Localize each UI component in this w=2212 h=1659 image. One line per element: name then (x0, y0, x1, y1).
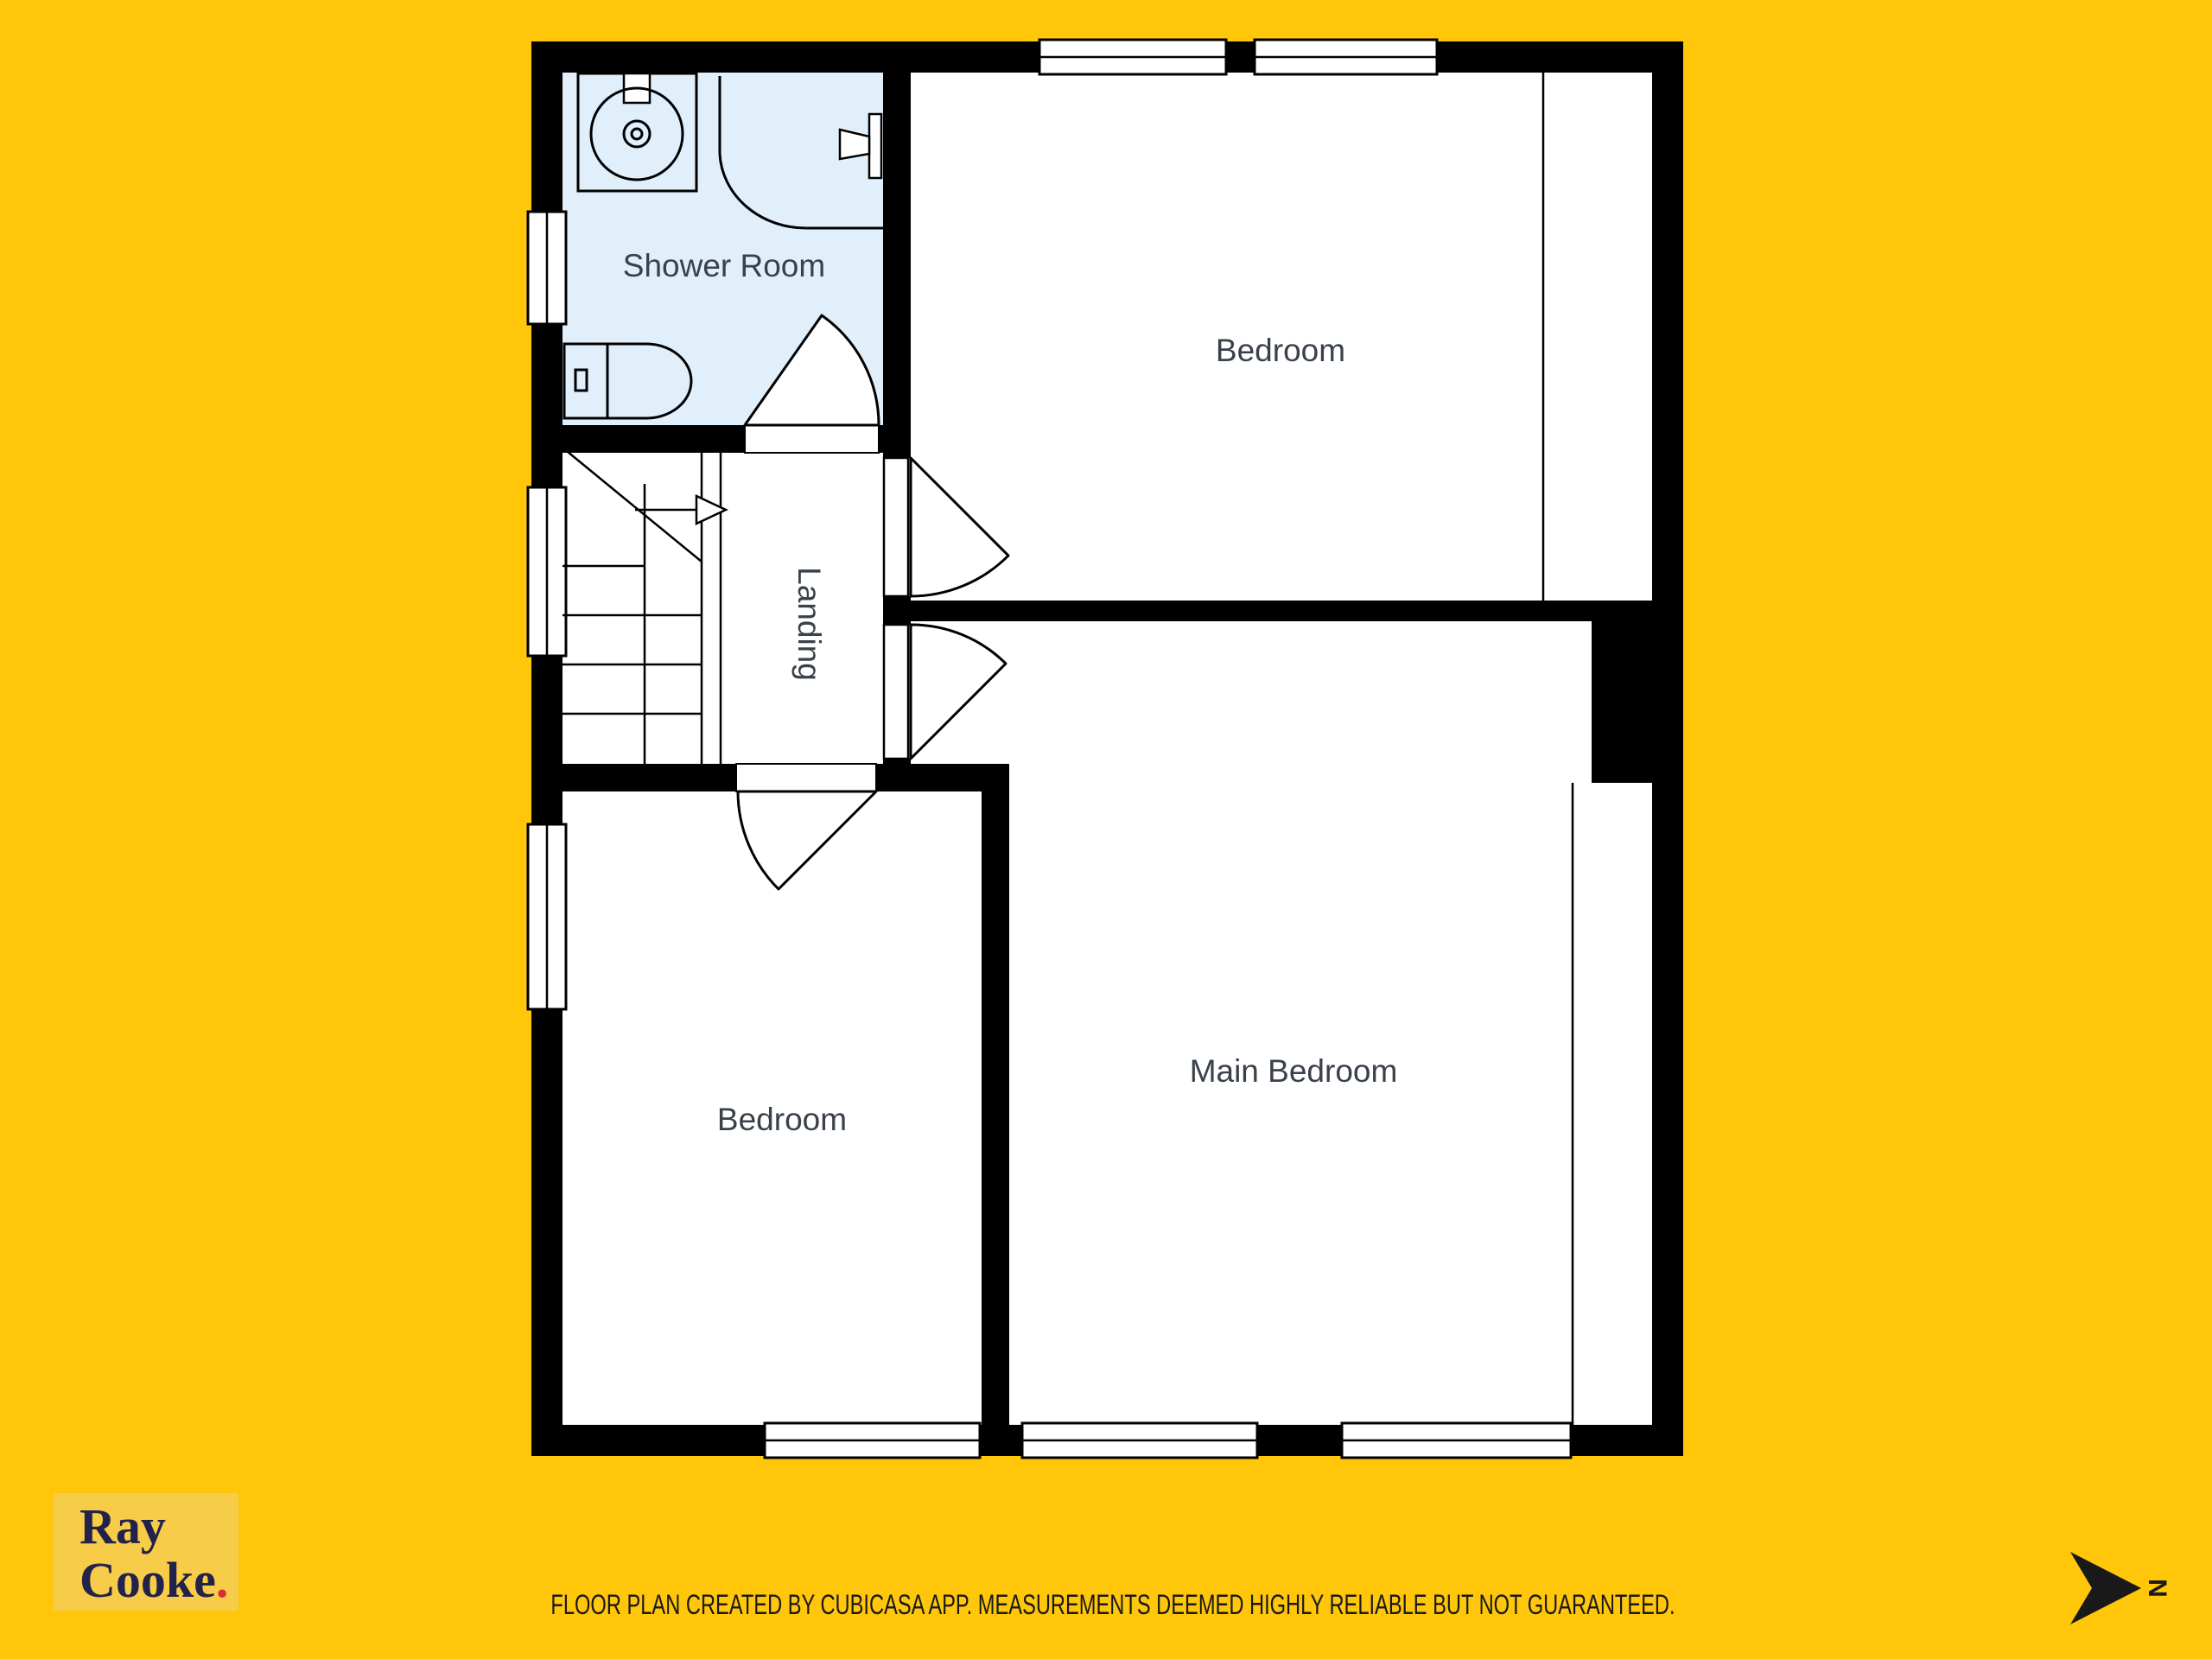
window (528, 487, 566, 656)
shower-room-door-opening (745, 425, 879, 453)
wall-landing-bottom-right (876, 764, 1009, 791)
wall-shower-bottom-left (563, 425, 745, 453)
wall-between-bottom-bedrooms (982, 791, 1009, 1425)
room-label-landing: Landing (791, 567, 827, 681)
bedroom-left-door-opening (736, 764, 876, 791)
room-label-shower-room: Shower Room (623, 248, 825, 283)
agency-logo-accent-dot: . (216, 1552, 229, 1608)
window (528, 212, 566, 324)
window (528, 824, 566, 1009)
north-label: N (2143, 1579, 2171, 1598)
window (1255, 40, 1437, 74)
wall-spine-upper (883, 41, 911, 458)
room-label-main-bedroom: Main Bedroom (1190, 1053, 1398, 1089)
agency-logo: Ray Cooke. (54, 1493, 238, 1611)
room-label-bedroom-left: Bedroom (717, 1102, 847, 1137)
wall-between-right-bedrooms (883, 601, 1652, 621)
bedroom-top-door-leaf (884, 458, 908, 596)
window (765, 1423, 980, 1458)
disclaimer-text: FLOOR PLAN CREATED BY CUBICASA APP. MEAS… (550, 1590, 1675, 1620)
north-arrow-icon (2070, 1552, 2141, 1624)
room-label-bedroom-top: Bedroom (1216, 333, 1345, 368)
window (1342, 1423, 1571, 1458)
agency-logo-name: Cooke (79, 1552, 216, 1608)
floor-plan-canvas: Shower Room Bedroom Landing Bedroom Main… (0, 0, 2212, 1659)
window (1022, 1423, 1257, 1458)
floor-plan-page: Shower Room Bedroom Landing Bedroom Main… (0, 0, 2212, 1659)
wall-shower-bottom-right (879, 425, 911, 453)
window (1039, 40, 1226, 74)
wall-chimney-breast (1592, 621, 1652, 783)
wall-outer-right (1652, 41, 1683, 1456)
wall-landing-bottom-left (563, 764, 736, 791)
agency-logo-line2: Cooke. (79, 1552, 228, 1608)
agency-logo-line1: Ray (79, 1498, 166, 1554)
north-compass: N (2070, 1552, 2171, 1624)
main-bedroom-door-leaf (884, 625, 908, 759)
floor-plan: Shower Room Bedroom Landing Bedroom Main… (528, 40, 1683, 1458)
